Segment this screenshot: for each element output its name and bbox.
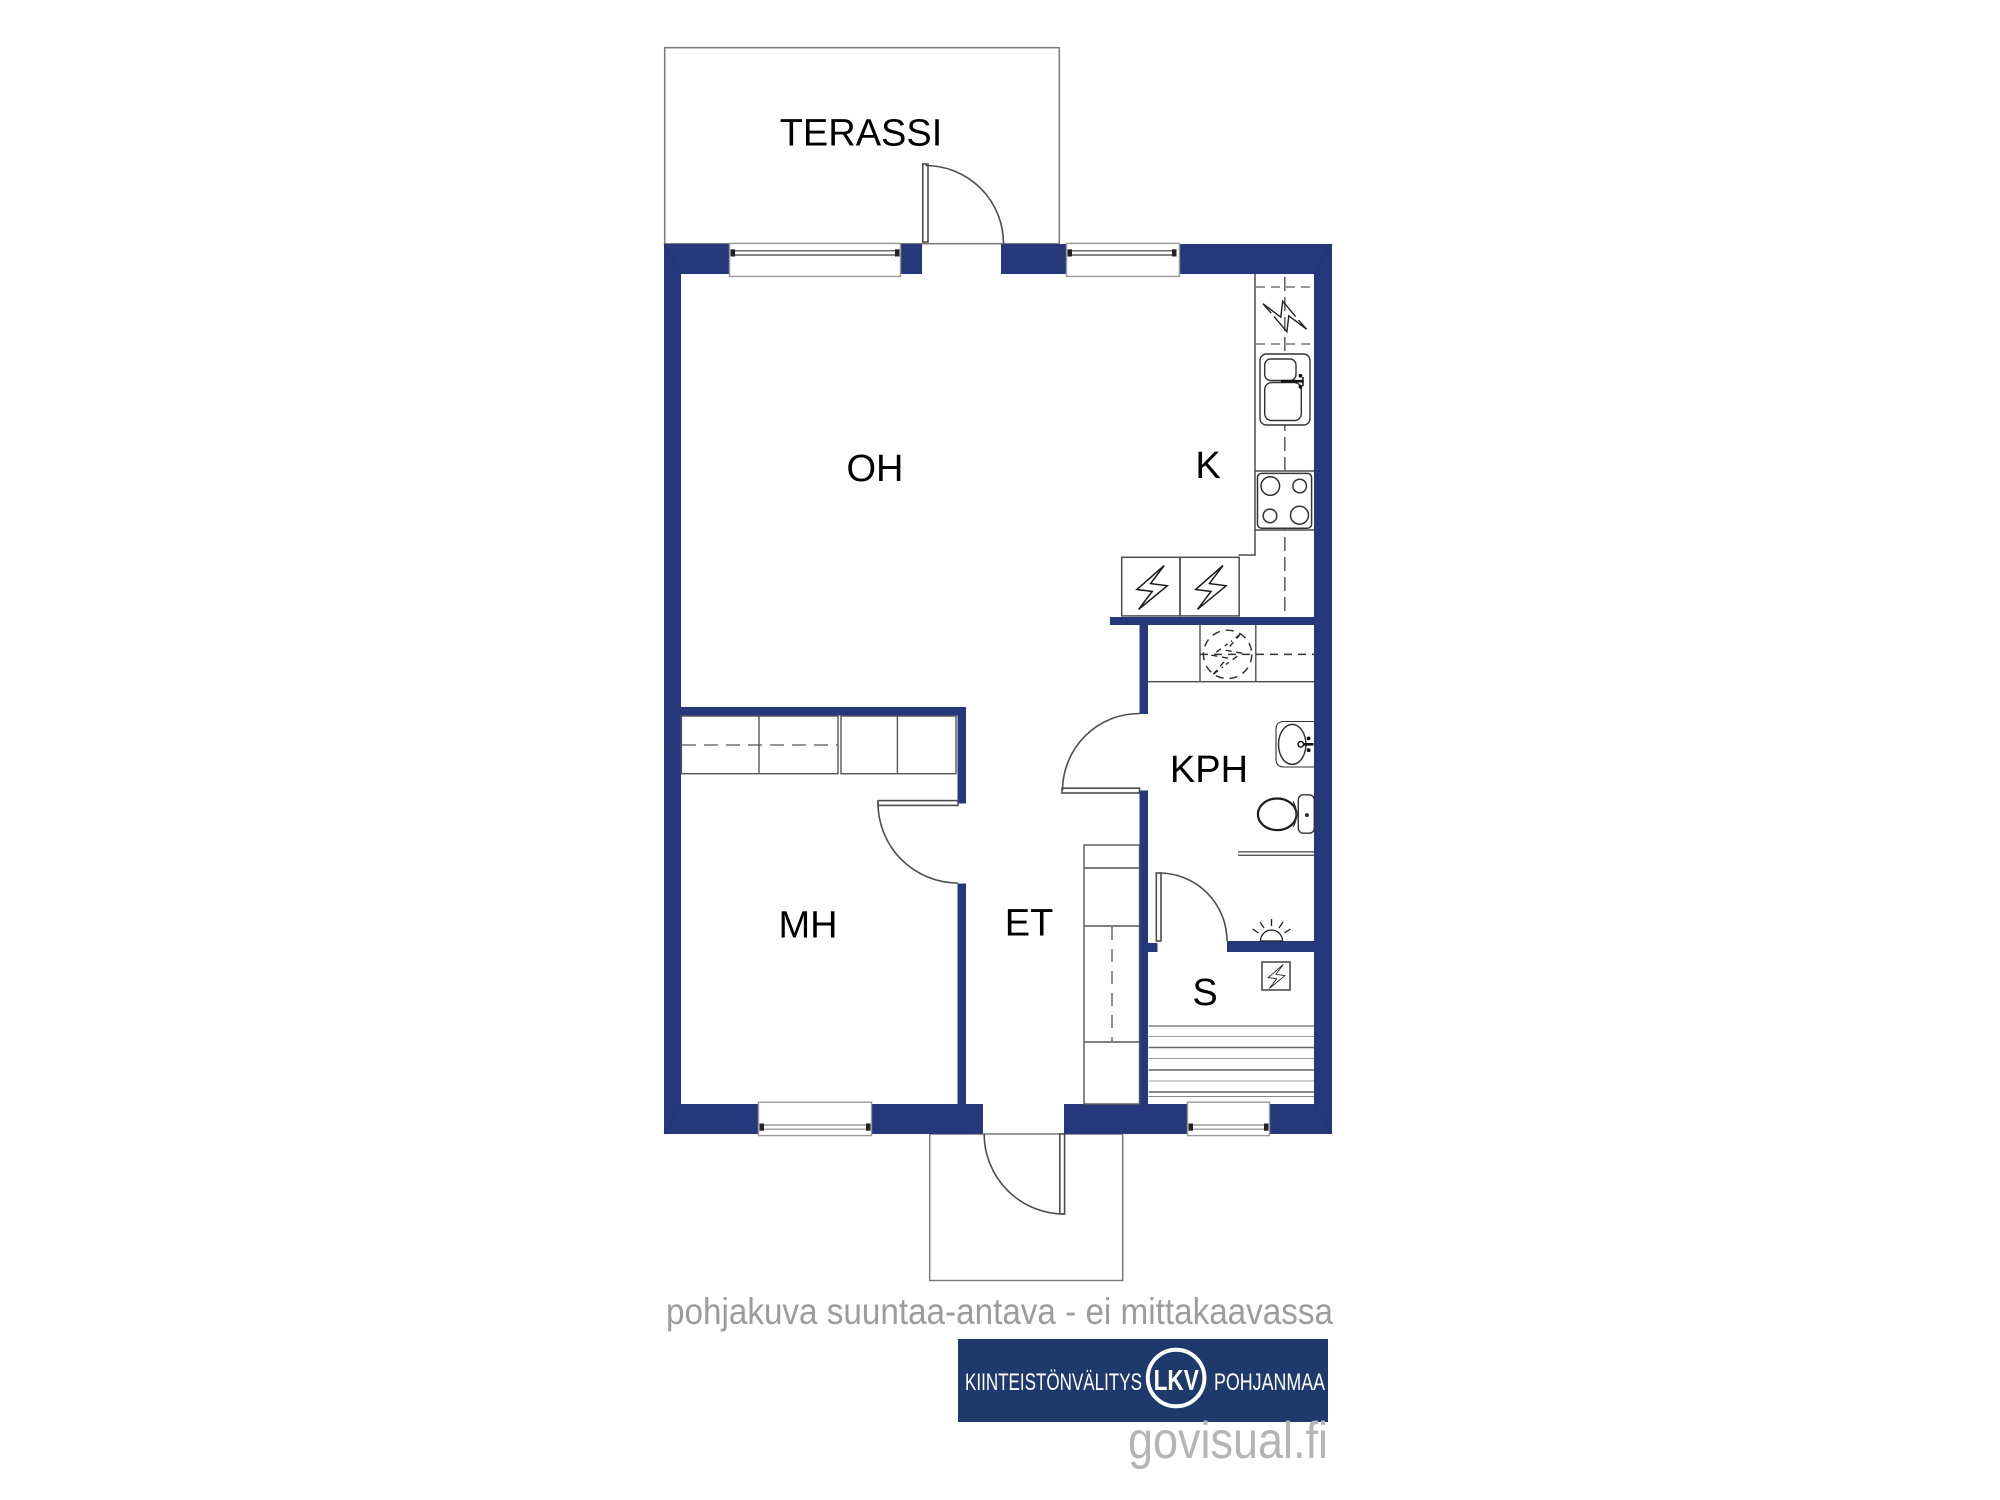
svg-text:TERASSI: TERASSI bbox=[780, 113, 943, 155]
svg-text:ET: ET bbox=[1005, 903, 1054, 945]
svg-text:POHJANMAA: POHJANMAA bbox=[1214, 1370, 1325, 1396]
svg-text:S: S bbox=[1192, 972, 1217, 1014]
svg-text:KIINTEISTÖNVÄLITYS: KIINTEISTÖNVÄLITYS bbox=[965, 1369, 1142, 1396]
svg-text:OH: OH bbox=[847, 448, 904, 490]
svg-text:LKV: LKV bbox=[1154, 1365, 1200, 1397]
svg-text:govisual.fi: govisual.fi bbox=[1128, 1412, 1328, 1470]
svg-text:MH: MH bbox=[778, 905, 837, 947]
svg-text:K: K bbox=[1195, 445, 1220, 487]
svg-text:pohjakuva suuntaa-antava - ei: pohjakuva suuntaa-antava - ei mittakaava… bbox=[666, 1291, 1333, 1332]
svg-text:KPH: KPH bbox=[1170, 749, 1248, 791]
